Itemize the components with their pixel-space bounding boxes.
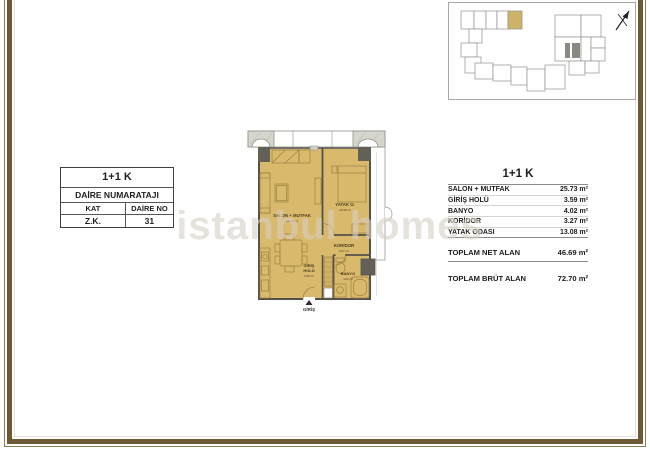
key-plan-core [565,43,570,58]
side-door-arc [385,207,392,221]
room-area: 3.27 m² [564,218,588,225]
entrance-label: GİRİŞ [303,306,315,312]
shaft [361,259,375,275]
window-mullion [310,146,318,150]
total-net-value: 46.69 m² [558,248,588,257]
key-plan-core [572,43,580,58]
area-row: SALON + MUTFAK 25.73 m² [448,185,588,196]
daire-no-value: 31 [125,214,173,227]
unit-type-title: 1+1 K [61,168,173,187]
bedroom-label: YATAK O. [335,202,355,207]
balcony-arch-right [353,131,385,147]
total-brut-value: 72.70 m² [558,274,588,283]
area-table: 1+1 K SALON + MUTFAK 25.73 m² GİRİŞ HOLÜ… [448,168,588,285]
area-table-title: 1+1 K [448,168,588,185]
north-arrow-icon [616,11,629,30]
balcony-arch-left [248,131,274,147]
bathroom-label: BANYO [341,271,355,276]
corridor-area: 3.27 m² [339,249,349,253]
entry-closet [324,257,333,298]
floor-plan-drawing: SALON + MUTFAK 25.73 m² YATAK O. 13.08 m… [235,100,410,320]
total-net-row: TOPLAM NET ALAN 46.69 m² [448,238,588,262]
bathroom-area: 4.02 m² [343,277,353,281]
key-plan-drawing [449,3,635,99]
entry-hall-label-2: HOLÜ [303,268,314,273]
area-row: GİRİŞ HOLÜ 3.59 m² [448,196,588,207]
column [358,147,371,161]
unit-table-subtitle: DAİRE NUMARATAJI [61,187,173,202]
room-area: 3.59 m² [564,197,588,204]
room-label: YATAK ODASI [448,229,495,236]
area-row: KORİDOR 3.27 m² [448,217,588,228]
area-row: BANYO 4.02 m² [448,206,588,217]
salon-area: 25.73 m² [286,219,298,223]
key-plan [448,2,636,100]
corridor-label: KORİDOR [334,243,355,248]
bedroom-area: 13.08 m² [339,208,351,212]
salon-label: SALON + MUTFAK [273,213,312,218]
room-area: 4.02 m² [564,208,588,215]
room-label: GİRİŞ HOLÜ [448,197,489,204]
apartment-body [259,148,370,299]
total-net-label: TOPLAM NET ALAN [448,248,520,257]
total-brut-row: TOPLAM BRÜT ALAN 72.70 m² [448,262,588,285]
floor-plan-sheet: 1+1 K DAİRE NUMARATAJI KAT DAİRE NO Z.K.… [0,0,650,450]
entry-hall-area: 3.59 m² [304,274,314,278]
column [258,147,270,162]
total-brut-label: TOPLAM BRÜT ALAN [448,274,526,283]
room-label: SALON + MUTFAK [448,186,510,193]
area-row: YATAK ODASI 13.08 m² [448,228,588,239]
room-label: BANYO [448,208,473,215]
kat-value: Z.K. [61,214,125,227]
key-plan-highlighted-unit [508,11,522,29]
kat-header: KAT [61,202,125,214]
unit-number-table: 1+1 K DAİRE NUMARATAJI KAT DAİRE NO Z.K.… [60,167,174,228]
daire-no-header: DAİRE NO [125,202,173,214]
room-label: KORİDOR [448,218,481,225]
room-area: 13.08 m² [560,229,588,236]
room-area: 25.73 m² [560,186,588,193]
balcony [248,131,385,147]
